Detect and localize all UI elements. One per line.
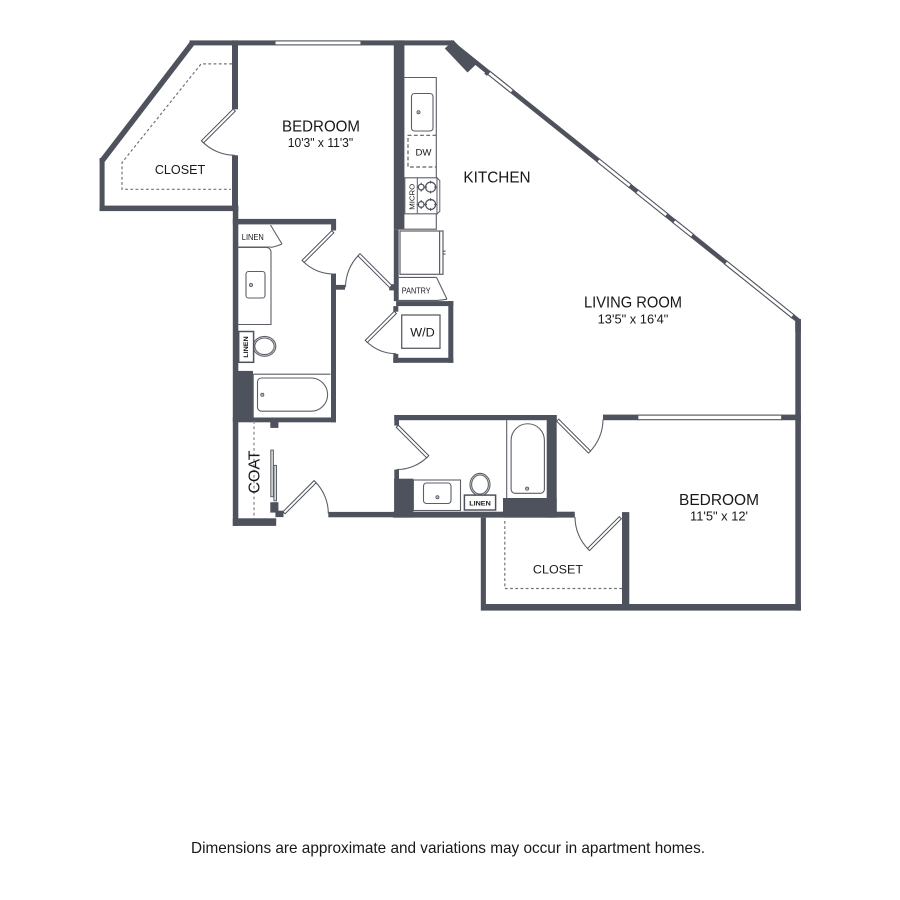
svg-text:DW: DW bbox=[416, 147, 432, 158]
svg-text:PANTRY: PANTRY bbox=[402, 287, 431, 296]
svg-text:11'5" x 12': 11'5" x 12' bbox=[690, 509, 748, 524]
svg-text:COAT: COAT bbox=[247, 450, 264, 494]
svg-text:13'5" x 16'4": 13'5" x 16'4" bbox=[598, 311, 669, 326]
svg-text:W/D: W/D bbox=[410, 328, 435, 340]
svg-text:MICRO: MICRO bbox=[410, 183, 417, 210]
svg-text:CLOSET: CLOSET bbox=[533, 563, 584, 577]
svg-text:LINEN: LINEN bbox=[244, 336, 250, 358]
svg-text:10'3" x 11'3": 10'3" x 11'3" bbox=[288, 135, 354, 150]
svg-text:Dimensions are approximate and: Dimensions are approximate and variation… bbox=[191, 840, 705, 857]
svg-text:LINEN: LINEN bbox=[469, 501, 491, 507]
svg-text:BEDROOM: BEDROOM bbox=[679, 492, 759, 509]
svg-text:CLOSET: CLOSET bbox=[155, 162, 205, 177]
svg-text:KITCHEN: KITCHEN bbox=[463, 170, 530, 187]
svg-text:LINEN: LINEN bbox=[242, 233, 264, 242]
svg-text:LIVING ROOM: LIVING ROOM bbox=[584, 295, 682, 312]
svg-text:BEDROOM: BEDROOM bbox=[282, 119, 360, 136]
